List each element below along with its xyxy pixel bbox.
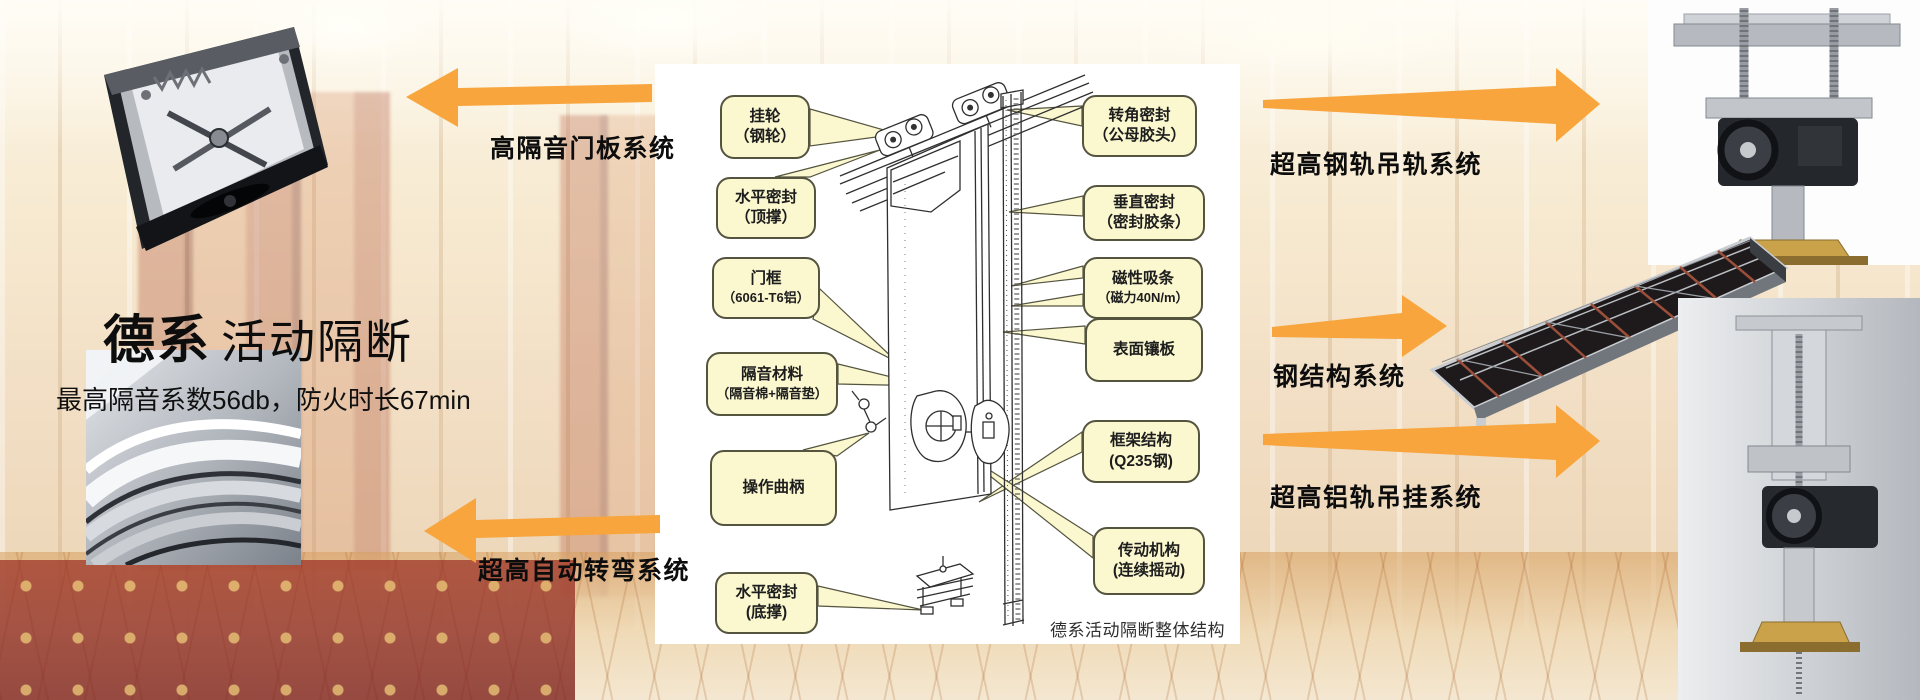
label-steel-structure-system: 钢结构系统: [1273, 357, 1406, 393]
label-door-panel-system: 高隔音门板系统: [490, 129, 676, 165]
callout-text: 挂轮: [749, 107, 780, 127]
callout-text: 操作曲柄: [742, 478, 804, 498]
callout-text: （钢轮）: [734, 127, 796, 147]
callout-text: 垂直密封: [1113, 193, 1175, 213]
callout-text: 隔音材料: [741, 365, 803, 385]
product-title: 德系活动隔断: [103, 298, 413, 373]
slide-canvas: 德系活动隔断 最高隔音系数56db，防火时长67min 高隔音门板系统 超高自动…: [0, 0, 1920, 700]
product-title-bold: 德系: [103, 312, 211, 370]
callout-text: （密封胶条）: [1097, 213, 1190, 233]
callout-frame-structure: 框架结构 (Q235钢): [1082, 420, 1200, 483]
callout-text: （公母胶头）: [1093, 126, 1186, 146]
label-aluminum-rail-system: 超高铝轨吊挂系统: [1270, 478, 1482, 514]
callout-text: (连续摇动): [1113, 561, 1185, 581]
callout-text: 水平密封: [735, 583, 797, 603]
callout-text: 传动机构: [1118, 541, 1180, 561]
label-steel-rail-system: 超高钢轨吊轨系统: [1270, 145, 1482, 181]
callout-magnetic-strip: 磁性吸条 （磁力40N/m）: [1083, 257, 1203, 319]
photo-door-panel-mechanism: [88, 15, 338, 260]
callout-vertical-seal: 垂直密封 （密封胶条）: [1083, 185, 1205, 241]
callout-text: （隔音棉+隔音垫）: [716, 386, 828, 403]
callout-text: 表面镶板: [1113, 340, 1175, 360]
callout-operating-crank: 操作曲柄: [710, 450, 837, 526]
callout-door-frame: 门框 （6061-T6铝）: [712, 257, 820, 319]
product-title-regular: 活动隔断: [221, 316, 413, 368]
callout-text: （磁力40N/m）: [1097, 290, 1188, 307]
photo-aluminum-rail-hanger: [1678, 298, 1920, 700]
diagram-caption: 德系活动隔断整体结构: [1035, 616, 1240, 641]
callout-horizontal-seal-bottom: 水平密封 (底撑): [715, 572, 818, 634]
callout-surface-panel: 表面镶板: [1085, 318, 1203, 382]
product-subtitle: 最高隔音系数56db，防火时长67min: [56, 380, 471, 417]
callout-text: 门框: [750, 269, 781, 289]
callout-text: （6061-T6铝）: [722, 290, 809, 307]
drawing-crank: [852, 391, 886, 432]
callout-corner-seal: 转角密封 （公母胶头）: [1082, 95, 1197, 157]
callout-text: (Q235钢): [1109, 452, 1173, 472]
label-auto-turning-system: 超高自动转弯系统: [478, 551, 690, 587]
callout-hanging-wheel: 挂轮 （钢轮）: [720, 95, 810, 159]
callout-soundproof-material: 隔音材料 （隔音棉+隔音垫）: [706, 352, 838, 416]
callout-text: 磁性吸条: [1112, 269, 1174, 289]
drawing-bottom-seal: [917, 556, 973, 614]
callout-text: 转角密封: [1108, 106, 1170, 126]
callout-text: （顶撑）: [735, 208, 797, 228]
callout-horizontal-seal-top: 水平密封 （顶撑）: [716, 177, 816, 239]
callout-text: 水平密封: [735, 188, 797, 208]
callout-drive-mechanism: 传动机构 (连续摇动): [1093, 527, 1205, 595]
callout-text: (底撑): [746, 603, 787, 623]
callout-text: 框架结构: [1110, 431, 1172, 451]
drawing-panel-edge: [1001, 90, 1024, 626]
